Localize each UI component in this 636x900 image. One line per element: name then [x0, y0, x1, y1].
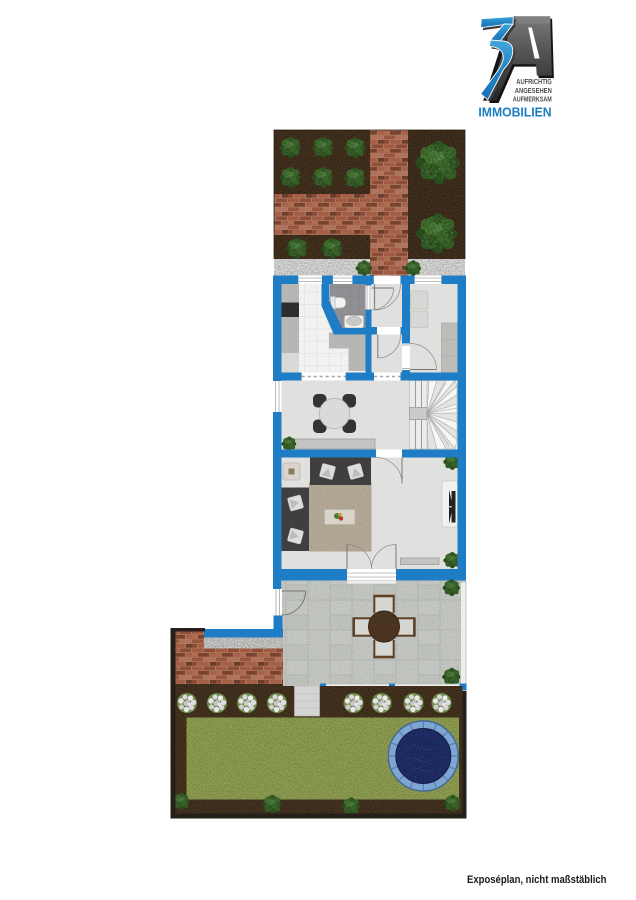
svg-text:AUFMERKSAM: AUFMERKSAM	[513, 94, 552, 103]
svg-text:IMMOBILIEN: IMMOBILIEN	[478, 105, 551, 119]
svg-text:Exposéplan, nicht maßstäblich: Exposéplan, nicht maßstäblich	[467, 874, 607, 886]
